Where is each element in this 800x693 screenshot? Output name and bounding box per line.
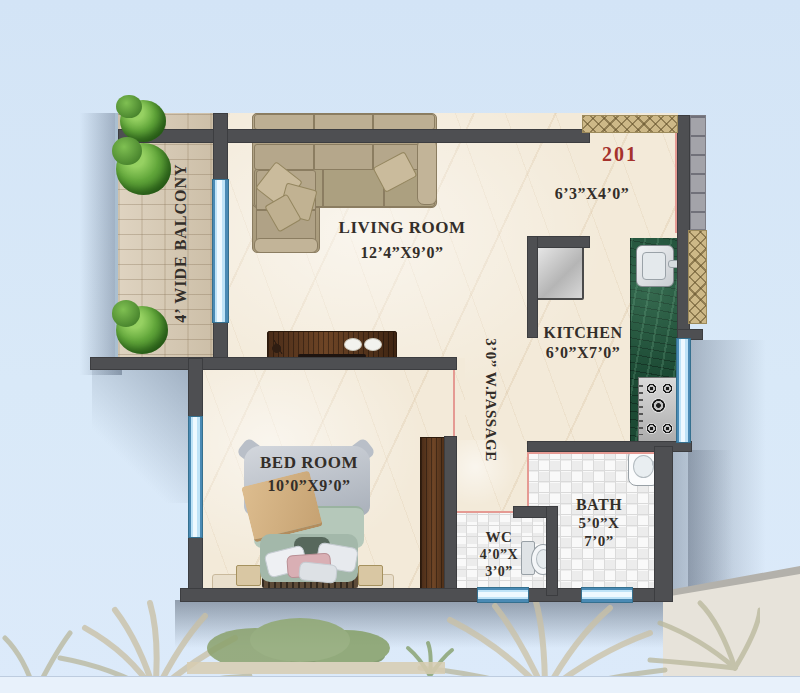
wall-living-south <box>90 357 457 370</box>
passage-label: 3’0” W.PASSAGE <box>481 325 501 475</box>
balcony-sliding-door <box>213 180 228 322</box>
redline-wc-entry <box>455 511 513 513</box>
bedroom-name: BED ROOM <box>238 451 380 474</box>
tv-console-plate-1 <box>344 338 362 351</box>
shadow-bottom-left <box>92 368 202 503</box>
bath-dims-2: 7’0” <box>559 532 639 550</box>
tv-console-plate-2 <box>364 338 382 351</box>
sofa-chaise-end <box>254 238 318 253</box>
balcony-label: 4’ WIDE BALCONY <box>170 133 192 353</box>
foyer-dims-label: 6’3”X4’0” <box>532 183 652 205</box>
wc-window <box>478 588 528 602</box>
wash-basin-bowl <box>633 455 654 478</box>
nightstand-left <box>236 565 261 586</box>
side-hatch-strip <box>688 230 707 324</box>
tv-console-decor <box>271 340 285 354</box>
nightstand-right <box>358 565 383 586</box>
kitchen-sink-basin <box>642 252 666 280</box>
redline-bath-top <box>529 452 655 454</box>
floor-plan-scene: 201 6’3”X4’0” LIVING ROOM 12’4”X9’0” KIT… <box>0 0 800 693</box>
wc-dims-2: 3’0” <box>464 563 534 580</box>
sofa-back-cushions <box>254 114 435 130</box>
stair-treads <box>690 115 706 230</box>
sofa-armrest-right <box>417 139 437 205</box>
bottom-band <box>0 676 800 693</box>
bedroom-label: BED ROOM 10’0”X9’0” <box>238 451 380 497</box>
bath-name: BATH <box>559 496 639 514</box>
stove-burner-3 <box>651 398 666 413</box>
entrance-threshold <box>582 115 678 133</box>
bath-dims-1: 5’0”X <box>559 514 639 532</box>
kitchen-name: KITCHEN <box>525 323 641 343</box>
bedroom-dims: 10’0”X9’0” <box>238 474 380 497</box>
redline-bath-entry <box>527 452 529 508</box>
wc-label: WC 4’0”X 3’0” <box>464 529 534 580</box>
bath-label: BATH 5’0”X 7’0” <box>559 496 639 550</box>
unit-number-label: 201 <box>580 141 660 168</box>
stove-burner-4 <box>646 423 657 434</box>
wc-dims-1: 4’0”X <box>464 546 534 563</box>
stove-burner-1 <box>646 383 657 394</box>
redline-bedroom-door <box>453 370 455 436</box>
bedroom-window <box>189 417 202 537</box>
shrub-2 <box>116 143 171 195</box>
bed-pillow-white-3 <box>298 561 338 584</box>
kitchen-window <box>677 339 690 442</box>
wall-bath-right <box>654 446 673 602</box>
wall-balcony-divider-top <box>213 113 228 181</box>
kitchen-dims: 6’0”X7’0” <box>525 343 641 363</box>
wall-bedroom-left-upper <box>188 358 203 418</box>
stove-burner-5 <box>662 423 673 434</box>
shrub-1 <box>120 100 166 142</box>
wall-wc-right <box>546 506 558 596</box>
wall-bottom-a <box>180 588 478 602</box>
refrigerator <box>531 244 584 300</box>
shrub-3 <box>116 306 168 354</box>
shadow-right <box>688 340 766 615</box>
living-room-label: LIVING ROOM 12’4”X9’0” <box>320 215 484 265</box>
wc-name: WC <box>464 529 534 546</box>
wall-balcony-divider-bottom <box>213 322 228 360</box>
wall-bedroom-right <box>444 436 457 592</box>
kitchen-label: KITCHEN 6’0”X7’0” <box>525 323 641 363</box>
living-room-dims: 12’4”X9’0” <box>320 240 484 265</box>
bath-window <box>582 588 632 602</box>
stove-knob-strip <box>639 385 643 435</box>
stove-burner-2 <box>662 383 673 394</box>
living-room-name: LIVING ROOM <box>320 215 484 240</box>
